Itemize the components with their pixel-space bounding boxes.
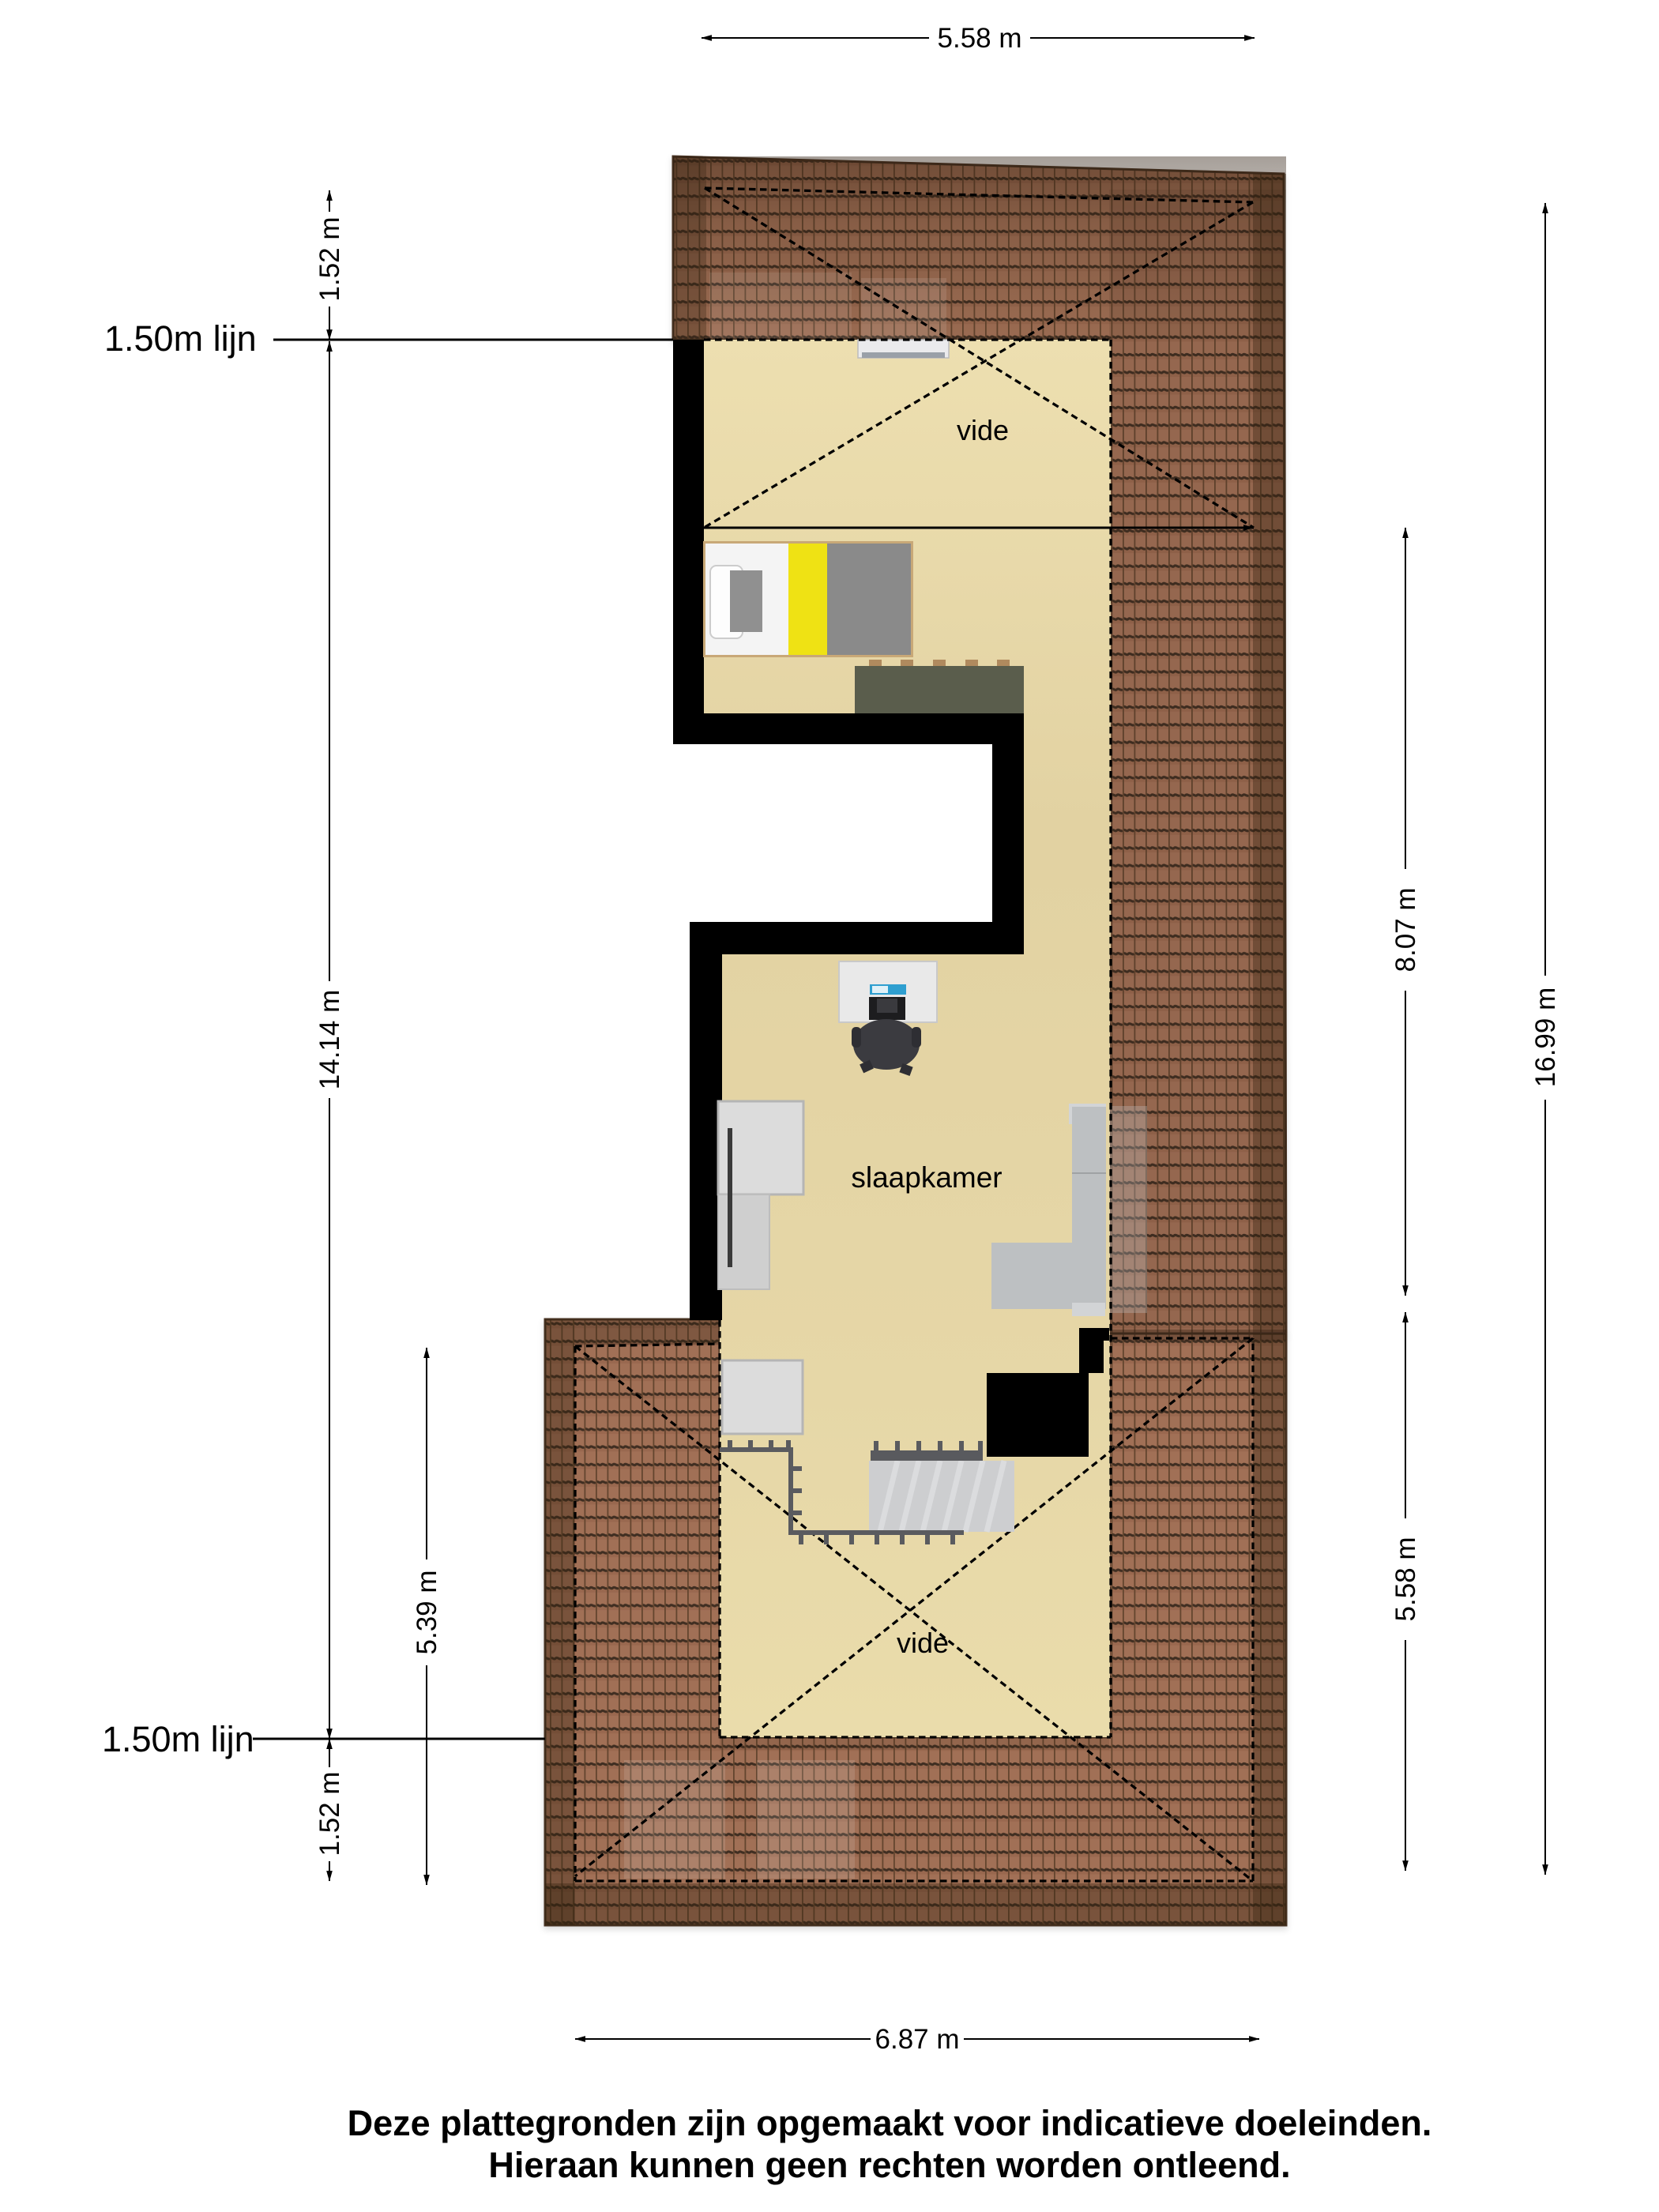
svg-text:slaapkamer: slaapkamer bbox=[851, 1161, 1002, 1194]
svg-text:16.99 m: 16.99 m bbox=[1530, 987, 1561, 1087]
svg-text:5.58 m: 5.58 m bbox=[938, 23, 1022, 54]
svg-text:Deze plattegronden zijn opgema: Deze plattegronden zijn opgemaakt voor i… bbox=[348, 2103, 1432, 2143]
svg-text:vide: vide bbox=[957, 414, 1009, 446]
svg-text:Hieraan kunnen geen rechten wo: Hieraan kunnen geen rechten worden ontle… bbox=[488, 2145, 1290, 2185]
svg-text:8.07 m: 8.07 m bbox=[1390, 888, 1421, 972]
svg-text:1.50m lijn: 1.50m lijn bbox=[104, 318, 257, 359]
svg-text:1.52 m: 1.52 m bbox=[314, 1772, 345, 1856]
svg-text:5.58 m: 5.58 m bbox=[1390, 1537, 1421, 1622]
svg-text:14.14 m: 14.14 m bbox=[314, 990, 345, 1089]
svg-text:1.50m lijn: 1.50m lijn bbox=[102, 1719, 254, 1759]
svg-text:6.87 m: 6.87 m bbox=[875, 2024, 960, 2055]
svg-text:5.39 m: 5.39 m bbox=[412, 1571, 442, 1655]
svg-text:1.52 m: 1.52 m bbox=[314, 217, 345, 302]
svg-text:vide: vide bbox=[897, 1627, 949, 1659]
